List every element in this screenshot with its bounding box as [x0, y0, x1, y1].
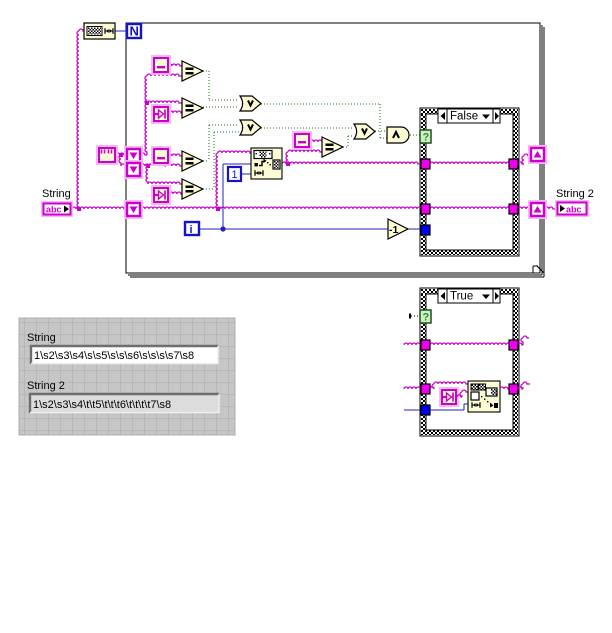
- svg-text:String: String: [42, 188, 71, 200]
- svg-text:String: String: [27, 332, 56, 344]
- svg-text:i: i: [190, 224, 193, 236]
- svg-text:-1: -1: [389, 224, 398, 236]
- svg-text:?: ?: [423, 312, 430, 324]
- svg-text:abc: abc: [46, 205, 62, 215]
- svg-text:True: True: [450, 291, 473, 303]
- svg-text:?: ?: [423, 132, 430, 144]
- svg-text:1\s2\s3\s4\t\t5\t\t\t6\t\t\t\t: 1\s2\s3\s4\t\t5\t\t\t6\t\t\t\t7\s8: [33, 399, 171, 411]
- svg-text:abc: abc: [566, 205, 582, 215]
- svg-text:1\s2\s3\s4\s\s5\s\s\s6\s\s\s\s: 1\s2\s3\s4\s\s5\s\s\s6\s\s\s\s7\s8: [34, 350, 194, 362]
- svg-text:String 2: String 2: [556, 188, 594, 200]
- svg-text:N: N: [130, 24, 139, 39]
- svg-text:String 2: String 2: [27, 380, 65, 392]
- svg-text:1: 1: [232, 169, 238, 181]
- svg-text:False: False: [450, 111, 478, 123]
